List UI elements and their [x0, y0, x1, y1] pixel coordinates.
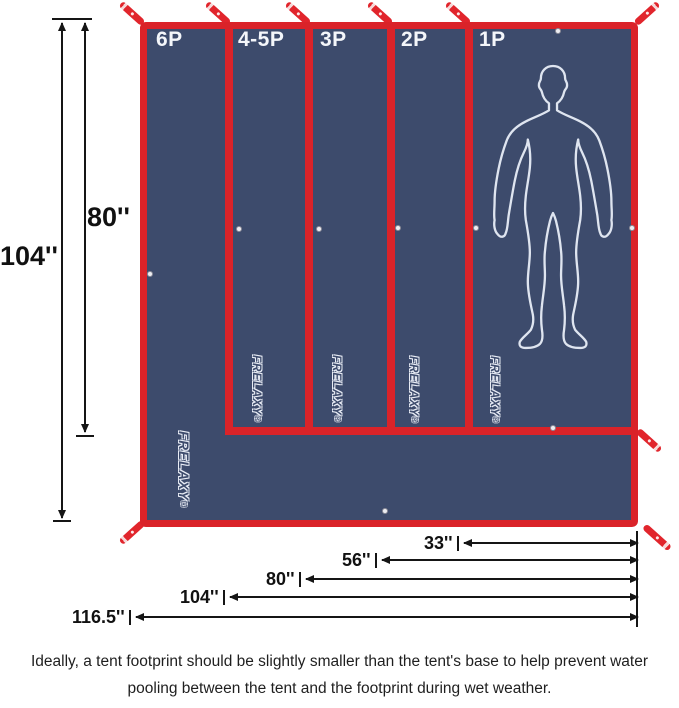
- dim-arrow: [306, 578, 638, 580]
- registered-mark: ®: [333, 416, 342, 423]
- grommet: [236, 226, 242, 232]
- brand-logo-1p: FRELAXY®: [488, 356, 500, 424]
- caption-line-1: Ideally, a tent footprint should be slig…: [0, 648, 679, 675]
- grommet: [316, 226, 322, 232]
- registered-mark: ®: [253, 416, 262, 423]
- brand-text: FRELAXY: [488, 356, 500, 417]
- brand-logo-2p: FRELAXY®: [407, 356, 419, 424]
- panel-label-6p: 6P: [156, 28, 183, 52]
- panel-divider-4: [465, 25, 473, 435]
- strap-bottom-right-corner: [642, 524, 672, 552]
- grommet: [473, 225, 479, 231]
- panel-divider-1: [225, 25, 233, 435]
- caption: Ideally, a tent footprint should be slig…: [0, 648, 679, 702]
- brand-logo-3p: FRELAXY®: [330, 355, 342, 423]
- brand-text: FRELAXY: [250, 355, 262, 416]
- dim-arrow: [382, 559, 638, 561]
- dim-label-56: 56'': [342, 550, 371, 571]
- dim-arrow-80: [84, 23, 86, 432]
- dim-arrow: [136, 616, 638, 618]
- brand-text: FRELAXY: [330, 355, 342, 416]
- dim-tick-80-bottom: [76, 435, 94, 437]
- strap-mid-right-edge: [636, 428, 663, 453]
- brand-text: FRELAXY: [407, 356, 419, 417]
- dim-label-80: 80'': [266, 569, 295, 590]
- grommet: [550, 425, 556, 431]
- registered-mark: ®: [179, 501, 188, 508]
- grommet: [382, 508, 388, 514]
- dim-label-height-104: 104'': [0, 241, 57, 272]
- dim-row-116-5: 116.5'': [72, 608, 638, 626]
- brand-text: FRELAXY: [176, 431, 191, 501]
- dim-row-33: 33'': [424, 534, 638, 552]
- grommet: [147, 271, 153, 277]
- grommet: [395, 225, 401, 231]
- dim-tick-104-bottom: [53, 520, 71, 522]
- dim-label-104: 104'': [180, 587, 219, 608]
- registered-mark: ®: [410, 417, 419, 424]
- product-infographic: 6P 4-5P 3P 2P 1P FRELAXY® FRELAXY® FRELA…: [0, 0, 679, 708]
- dim-label-116-5: 116.5'': [72, 607, 125, 628]
- panel-divider-2: [305, 25, 313, 435]
- dim-arrow-104: [61, 23, 63, 518]
- grommet: [629, 225, 635, 231]
- dim-tick-top: [52, 18, 92, 20]
- dim-tick: [457, 536, 459, 551]
- brand-logo-6p: FRELAXY®: [176, 431, 191, 508]
- dim-row-56: 56'': [342, 551, 638, 569]
- strap-top-right-corner: [634, 1, 661, 26]
- dim-tick: [223, 590, 225, 605]
- registered-mark: ®: [491, 417, 500, 424]
- caption-line-2: pooling between the tent and the footpri…: [0, 675, 679, 702]
- panel-bottom-divider: [228, 427, 638, 435]
- panel-divider-3: [387, 25, 395, 435]
- panel-label-3p: 3P: [320, 28, 347, 52]
- dim-row-104: 104'': [180, 588, 638, 606]
- human-silhouette: [492, 62, 614, 354]
- dim-tick: [375, 553, 377, 568]
- dim-label-height-80: 80'': [87, 202, 130, 233]
- panel-label-2p: 2P: [401, 28, 428, 52]
- dim-tick: [129, 610, 131, 625]
- brand-logo-4-5p: FRELAXY®: [250, 355, 262, 423]
- dim-arrow: [464, 542, 638, 544]
- dim-row-80: 80'': [266, 570, 638, 588]
- panel-label-4-5p: 4-5P: [238, 28, 284, 52]
- panel-label-1p: 1P: [479, 28, 506, 52]
- dim-arrow: [230, 596, 638, 598]
- dim-common-endline: [636, 531, 638, 627]
- dim-tick: [299, 572, 301, 587]
- grommet: [555, 28, 561, 34]
